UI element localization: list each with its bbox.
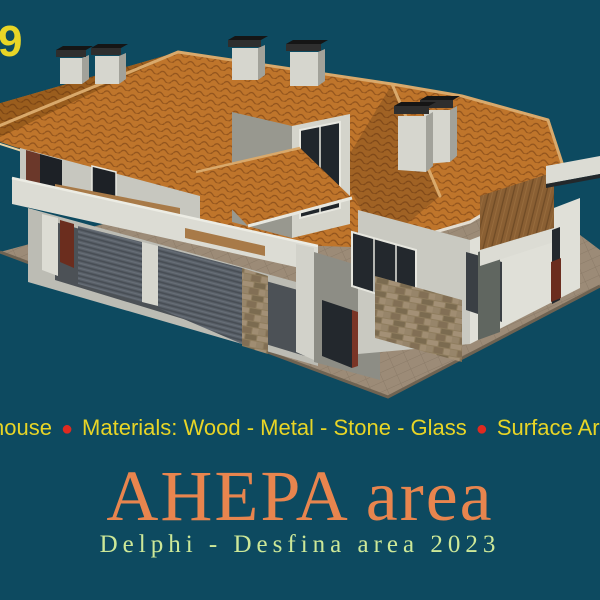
chimney-side bbox=[82, 55, 89, 84]
chimney-front bbox=[60, 58, 82, 84]
chimney-cap-front bbox=[394, 106, 429, 114]
chimney-front bbox=[95, 56, 119, 84]
banner-segment-house: house bbox=[0, 415, 52, 440]
chimney-cap bbox=[420, 96, 460, 100]
chimney-front bbox=[232, 48, 258, 80]
garage-pillar-1 bbox=[42, 214, 58, 276]
centre-door-glass bbox=[322, 300, 352, 368]
centre-column bbox=[296, 244, 314, 360]
chimney-cap bbox=[394, 102, 436, 106]
centre-door-frame bbox=[352, 310, 358, 368]
chimney-side bbox=[450, 106, 457, 162]
materials-banner: house●Materials: Wood - Metal - Stone - … bbox=[0, 412, 600, 445]
bullet-icon: ● bbox=[476, 418, 488, 440]
chimney-cap-front bbox=[91, 48, 121, 55]
chimney-side bbox=[426, 112, 433, 172]
poster: 9 house●Materials: Wood - Metal - Stone … bbox=[0, 0, 600, 600]
chimney-side bbox=[318, 49, 325, 86]
chimney-cap-front bbox=[286, 44, 321, 51]
chimney-cap bbox=[228, 36, 268, 40]
area-title: AHEPA area bbox=[0, 458, 600, 534]
chimney-cap bbox=[286, 40, 328, 44]
entry-door-red bbox=[60, 220, 74, 268]
chimney-side bbox=[119, 53, 126, 84]
garage-pillar-2 bbox=[142, 242, 158, 306]
location-subtitle: Delphi - Desfina area 2023 bbox=[0, 531, 600, 559]
chimney-cap-front bbox=[228, 40, 261, 47]
stone-pillar bbox=[242, 268, 268, 354]
banner-segment-materials: Materials: Wood - Metal - Stone - Glass bbox=[82, 415, 467, 440]
side-door-red bbox=[551, 258, 561, 302]
banner-segment-surface: Surface Area: 1 bbox=[497, 415, 600, 440]
chimney-cap-front bbox=[56, 50, 86, 57]
corner-number: 9 bbox=[0, 20, 22, 64]
chimney-front bbox=[290, 52, 318, 86]
chimney-front bbox=[398, 116, 426, 172]
bullet-icon: ● bbox=[61, 418, 73, 440]
chimney-side bbox=[258, 45, 265, 80]
